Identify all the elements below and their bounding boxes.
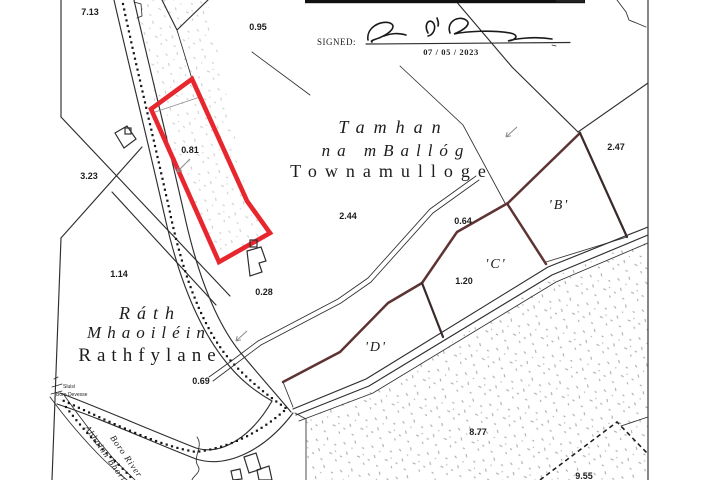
townland-irish-line2: na mBallóg (322, 141, 471, 160)
area-label: 8.77 (469, 427, 487, 437)
signed-label: SIGNED: (317, 37, 356, 47)
area-label: 0.69 (192, 376, 210, 386)
parcel-letter-d: 'D' (365, 340, 387, 355)
townland-name-townamulloge: Tamhan na mBallóg Townamulloge (290, 117, 494, 181)
signed-block: SIGNED: 07 / 05 / 2023 (305, 0, 585, 57)
area-label: 2.47 (607, 142, 625, 152)
townland-irish-line1: Tamhan (338, 117, 449, 137)
area-label: 9.55 (575, 471, 593, 480)
river-name-labels: Abhainn Bhoru Boro River (82, 423, 145, 480)
area-label: 3.23 (80, 171, 98, 181)
area-label: 0.81 (181, 145, 199, 155)
signature-line-tick (552, 45, 556, 46)
townland-irish-line1: Ráth (118, 303, 181, 323)
signature-date: 07 / 05 / 2023 (423, 47, 479, 57)
area-label: 0.64 (454, 216, 472, 226)
parcel-letter-b: 'B' (549, 198, 570, 213)
area-label: 7.13 (81, 7, 99, 17)
signature-line (366, 43, 570, 45)
area-label: 1.20 (455, 276, 473, 286)
townland-irish-line2: Mhaoiléin (86, 323, 211, 342)
micro-label-line1: Sluisí (63, 384, 76, 390)
parcel-letter-c: 'C' (485, 257, 506, 272)
cadastral-map-canvas: SIGNED: 07 / 05 / 2023 Tamhan na mBallóg… (0, 0, 720, 480)
area-label: 2.44 (339, 211, 357, 221)
townland-english: Rathfylane (78, 345, 221, 366)
area-label: 0.28 (255, 287, 273, 297)
signature-scribble (368, 18, 552, 42)
micro-label-line2: Boro Devesse (56, 392, 88, 398)
townland-english: Townamulloge (290, 161, 494, 181)
area-label: 1.14 (110, 269, 128, 279)
cropped-text-bar-end (556, 0, 584, 2)
cadastral-map-page: SIGNED: 07 / 05 / 2023 Tamhan na mBallóg… (0, 0, 720, 480)
stipple-texture-regions (137, 0, 648, 480)
cropped-text-bar (305, 0, 585, 3)
area-label: 0.95 (249, 22, 267, 32)
